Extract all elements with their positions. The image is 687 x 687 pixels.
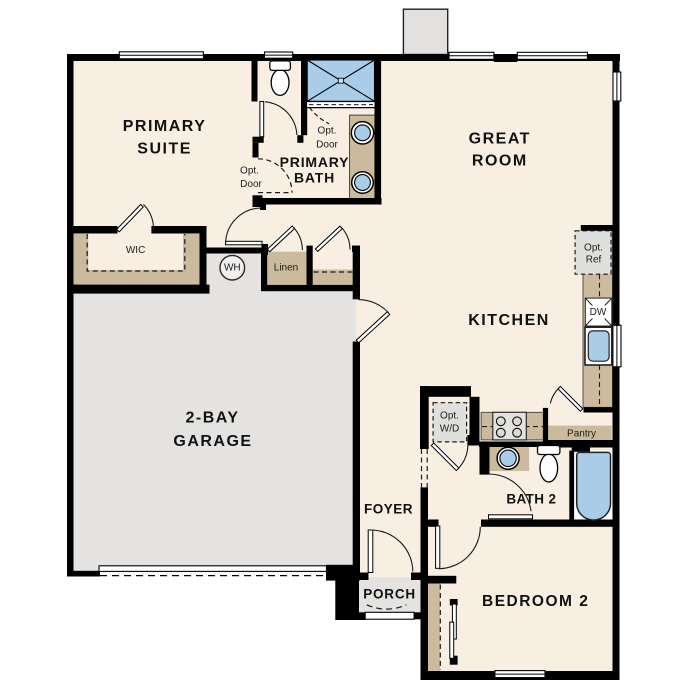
svg-text:Opt.: Opt. xyxy=(318,126,337,137)
svg-text:Opt.: Opt. xyxy=(584,242,603,253)
svg-text:Opt.: Opt. xyxy=(240,166,259,177)
svg-text:Door: Door xyxy=(240,179,262,190)
svg-text:PRIMARY: PRIMARY xyxy=(123,118,207,135)
svg-text:BEDROOM 2: BEDROOM 2 xyxy=(482,593,589,610)
svg-text:ROOM: ROOM xyxy=(472,152,528,169)
svg-text:W/D: W/D xyxy=(440,423,459,434)
svg-text:FOYER: FOYER xyxy=(364,501,413,516)
svg-text:BATH: BATH xyxy=(294,170,335,186)
svg-text:Linen: Linen xyxy=(274,263,298,274)
svg-text:GARAGE: GARAGE xyxy=(173,433,252,450)
svg-text:2-BAY: 2-BAY xyxy=(185,410,239,427)
svg-text:WIC: WIC xyxy=(126,245,145,256)
svg-text:WH: WH xyxy=(224,263,241,274)
svg-text:PORCH: PORCH xyxy=(363,586,416,601)
svg-text:Pantry: Pantry xyxy=(567,429,596,440)
svg-text:PRIMARY: PRIMARY xyxy=(280,154,350,170)
svg-text:Door: Door xyxy=(316,140,338,151)
svg-text:DW: DW xyxy=(590,307,607,318)
svg-text:KITCHEN: KITCHEN xyxy=(468,312,550,329)
svg-text:GREAT: GREAT xyxy=(469,130,531,147)
svg-text:BATH 2: BATH 2 xyxy=(506,492,556,507)
svg-text:Opt.: Opt. xyxy=(440,410,459,421)
svg-text:SUITE: SUITE xyxy=(137,140,192,157)
svg-text:Ref: Ref xyxy=(586,255,602,266)
